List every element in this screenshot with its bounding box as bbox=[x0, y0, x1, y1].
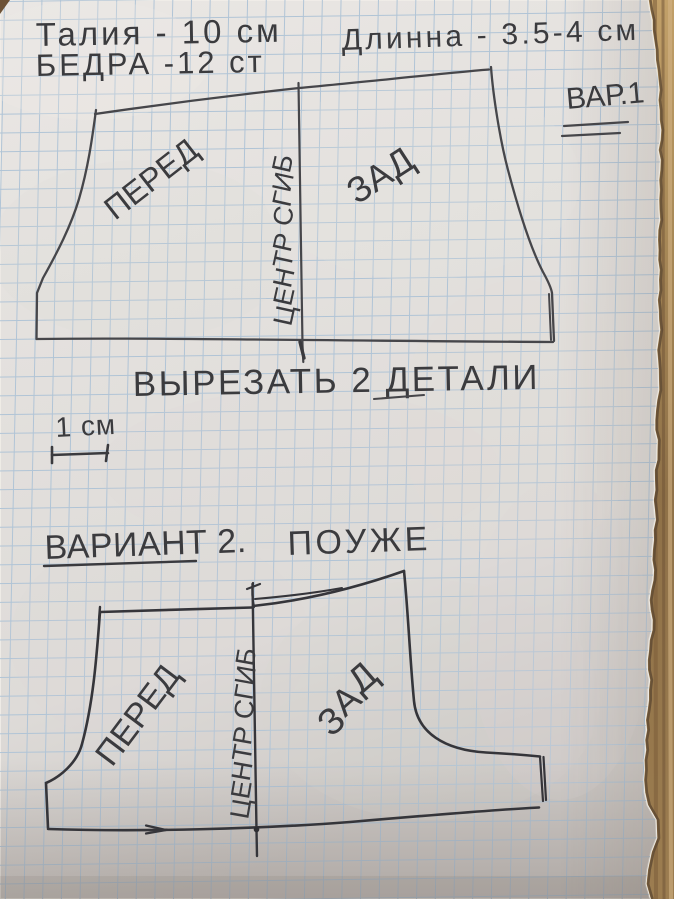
svg-text:ЦЕНТР СГИБ: ЦЕНТР СГИБ bbox=[266, 151, 301, 328]
svg-text:ВАРИАНТ 2.: ВАРИАНТ 2. bbox=[44, 522, 247, 567]
svg-text:1 см: 1 см bbox=[55, 409, 117, 443]
svg-text:БЕДРА -12 ст: БЕДРА -12 ст bbox=[36, 44, 266, 83]
svg-text:ВАР.1: ВАР.1 bbox=[565, 76, 646, 116]
svg-text:ВЫРЕЗАТЬ 2 ДЕТАЛИ: ВЫРЕЗАТЬ 2 ДЕТАЛИ bbox=[132, 358, 540, 404]
svg-text:ПОУЖЕ: ПОУЖЕ bbox=[287, 520, 432, 563]
